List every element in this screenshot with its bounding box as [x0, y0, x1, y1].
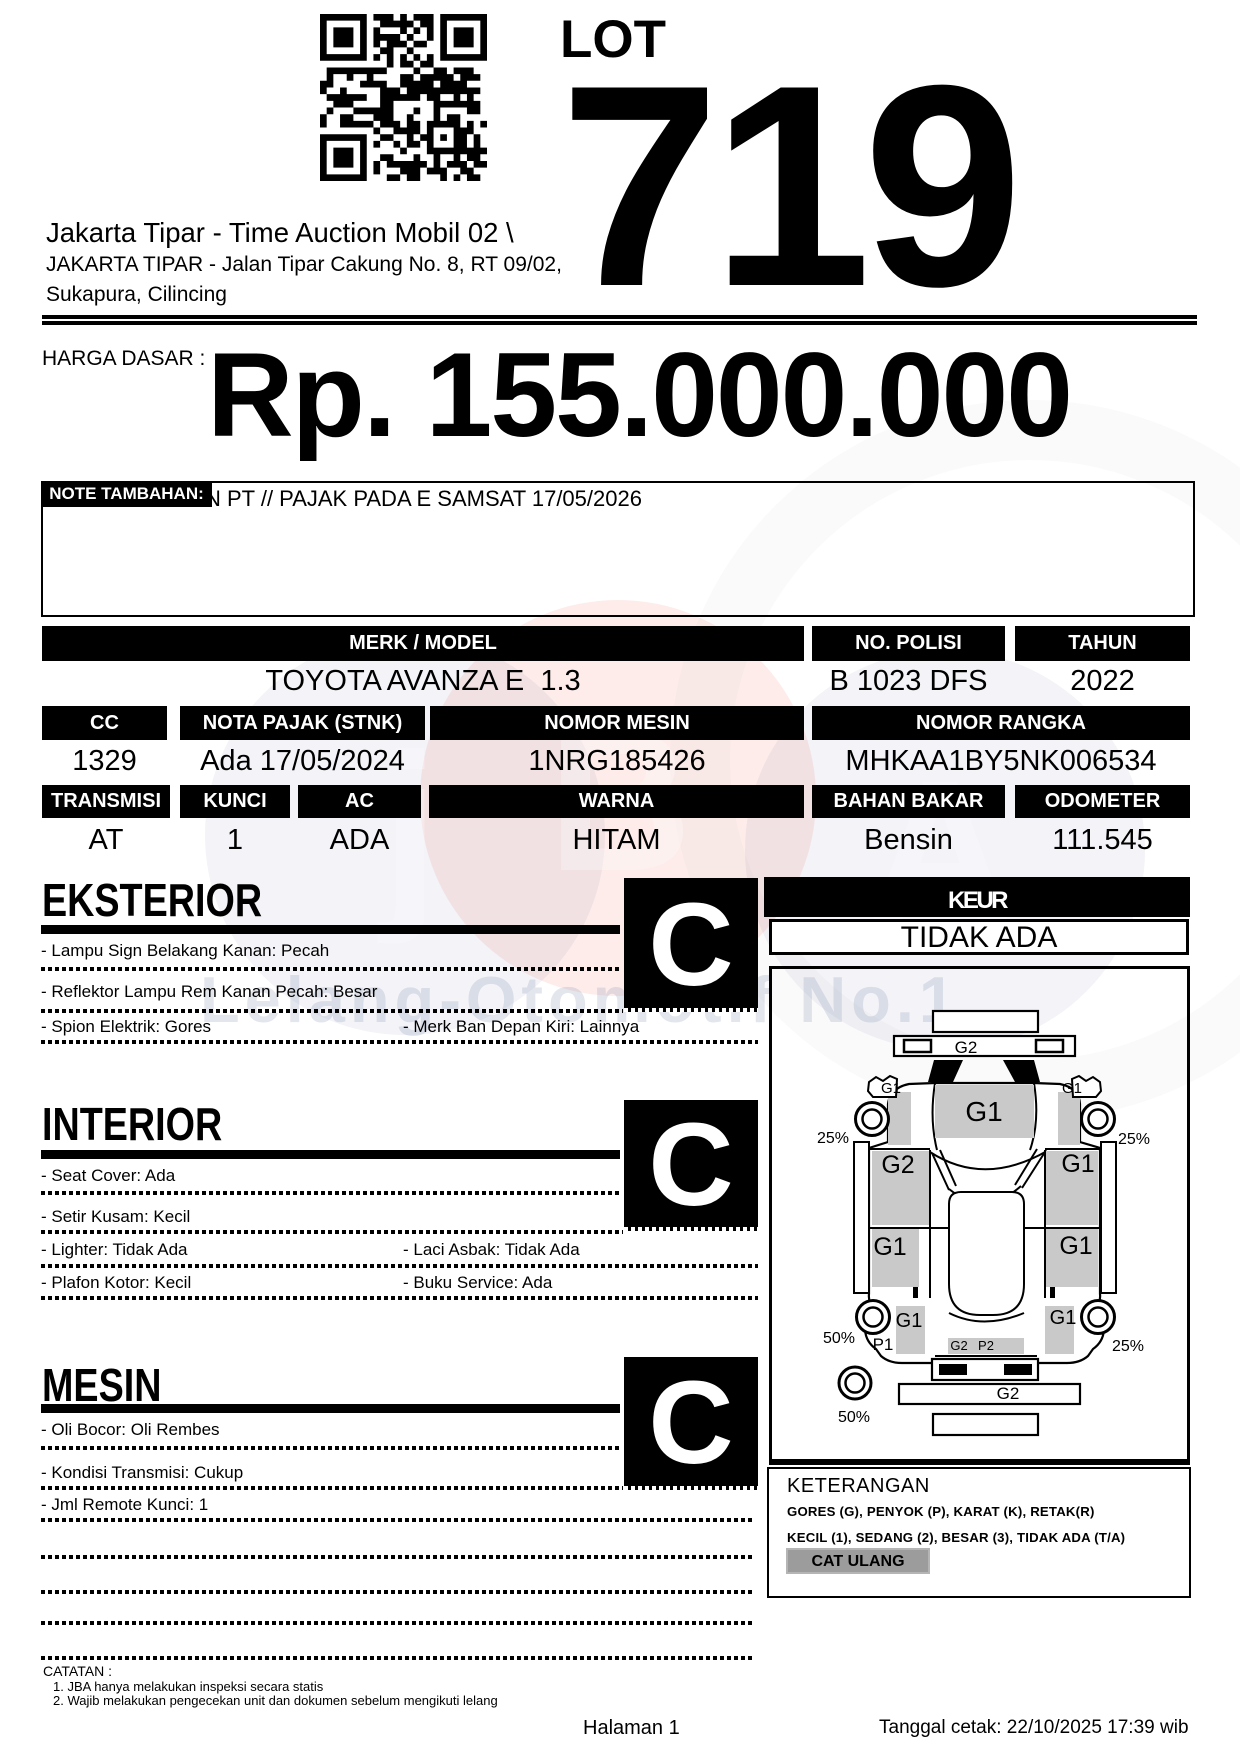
- svg-text:G1: G1: [1059, 1232, 1092, 1260]
- svg-text:G2: G2: [955, 1038, 978, 1057]
- svg-text:25%: 25%: [817, 1130, 849, 1147]
- svg-text:G1: G1: [965, 1096, 1002, 1127]
- svg-text:G2: G2: [881, 1151, 914, 1179]
- svg-text:25%: 25%: [1118, 1131, 1150, 1148]
- svg-text:G1: G1: [1050, 1307, 1077, 1329]
- svg-text:P1: P1: [873, 1335, 894, 1354]
- svg-text:50%: 50%: [838, 1409, 870, 1426]
- svg-text:G2: G2: [950, 1338, 967, 1353]
- svg-text:G1: G1: [1062, 1080, 1082, 1097]
- svg-text:G1: G1: [873, 1233, 906, 1261]
- svg-text:G1: G1: [896, 1310, 923, 1332]
- svg-text:P2: P2: [978, 1338, 994, 1353]
- svg-text:G1: G1: [881, 1080, 901, 1097]
- svg-text:G1: G1: [1061, 1150, 1094, 1178]
- svg-text:25%: 25%: [1112, 1338, 1144, 1355]
- svg-text:50%: 50%: [823, 1330, 855, 1347]
- svg-text:G2: G2: [997, 1384, 1020, 1403]
